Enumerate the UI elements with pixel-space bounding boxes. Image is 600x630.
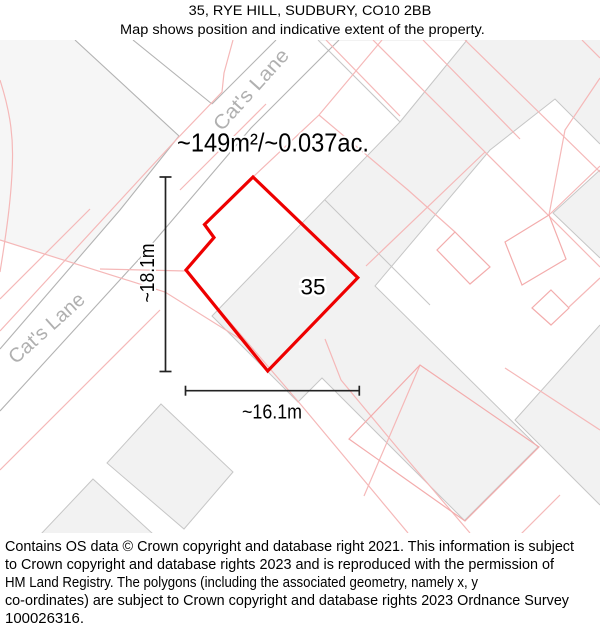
svg-text:HM Land Registry. The polygons: HM Land Registry. The polygons (includin… bbox=[5, 575, 479, 591]
svg-text:co-ordinates) are subject to C: co-ordinates) are subject to Crown copyr… bbox=[5, 593, 570, 609]
svg-text:Contains OS data © Crown copyr: Contains OS data © Crown copyright and d… bbox=[5, 539, 574, 555]
svg-text:35, RYE HILL, SUDBURY, CO10 2B: 35, RYE HILL, SUDBURY, CO10 2BB bbox=[189, 3, 432, 18]
svg-text:~149m²/~0.037ac.: ~149m²/~0.037ac. bbox=[177, 128, 369, 158]
svg-text:35: 35 bbox=[300, 275, 325, 300]
svg-text:~16.1m: ~16.1m bbox=[242, 401, 302, 423]
svg-text:to Crown copyright and databas: to Crown copyright and database rights 2… bbox=[5, 557, 554, 573]
svg-text:100026316.: 100026316. bbox=[5, 611, 84, 625]
svg-text:Map shows position and indicat: Map shows position and indicative extent… bbox=[120, 22, 485, 37]
svg-text:~18.1m: ~18.1m bbox=[137, 244, 159, 303]
